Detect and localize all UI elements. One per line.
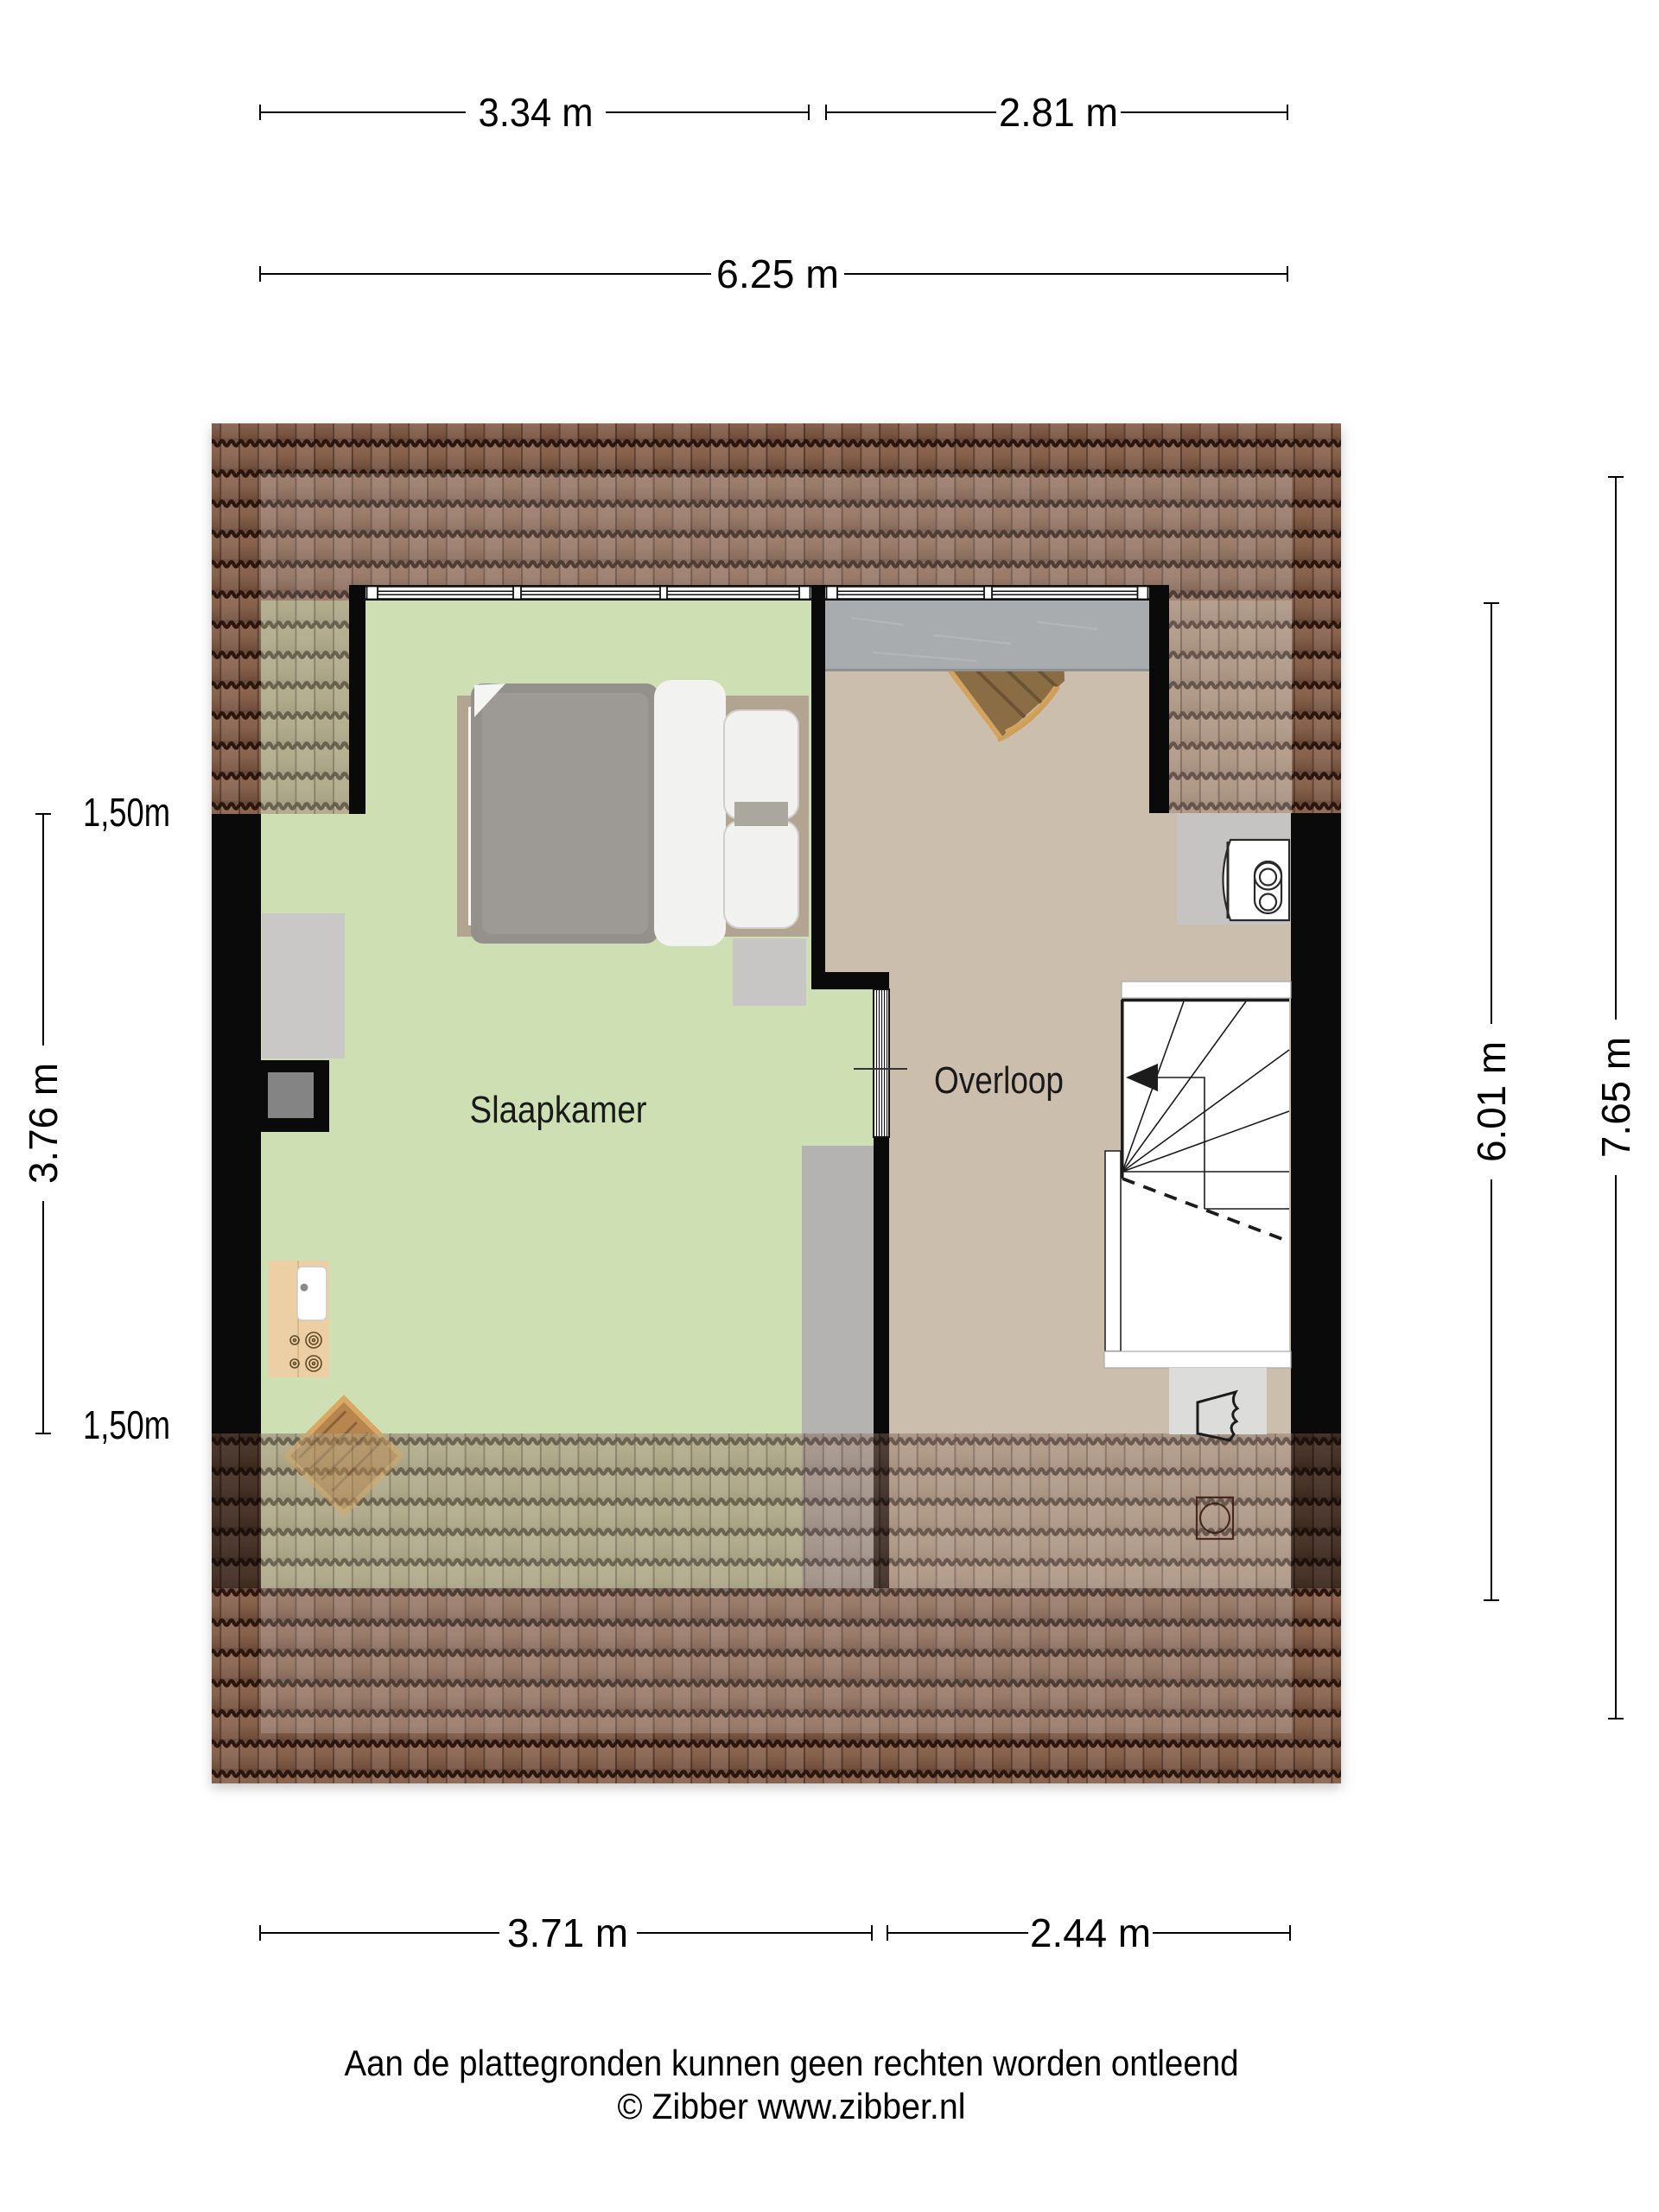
svg-text:7.65 m: 7.65 m	[1593, 1037, 1638, 1158]
svg-text:Aan de plattegronden kunnen ge: Aan de plattegronden kunnen geen rechten…	[345, 2043, 1239, 2083]
svg-text:1,50m: 1,50m	[83, 790, 170, 835]
svg-text:© Zibber www.zibber.nl: © Zibber www.zibber.nl	[618, 2086, 966, 2126]
svg-text:3.34 m: 3.34 m	[479, 90, 594, 135]
svg-text:3.76 m: 3.76 m	[21, 1063, 66, 1184]
svg-text:1,50m: 1,50m	[83, 1402, 170, 1447]
svg-text:2.44 m: 2.44 m	[1030, 1910, 1151, 1955]
svg-text:Slaapkamer: Slaapkamer	[470, 1089, 647, 1131]
svg-text:2.81 m: 2.81 m	[999, 90, 1118, 135]
svg-text:3.71 m: 3.71 m	[507, 1910, 628, 1955]
svg-text:Overloop: Overloop	[934, 1059, 1064, 1102]
svg-text:6.25 m: 6.25 m	[716, 251, 839, 296]
svg-text:6.01 m: 6.01 m	[1469, 1041, 1514, 1162]
